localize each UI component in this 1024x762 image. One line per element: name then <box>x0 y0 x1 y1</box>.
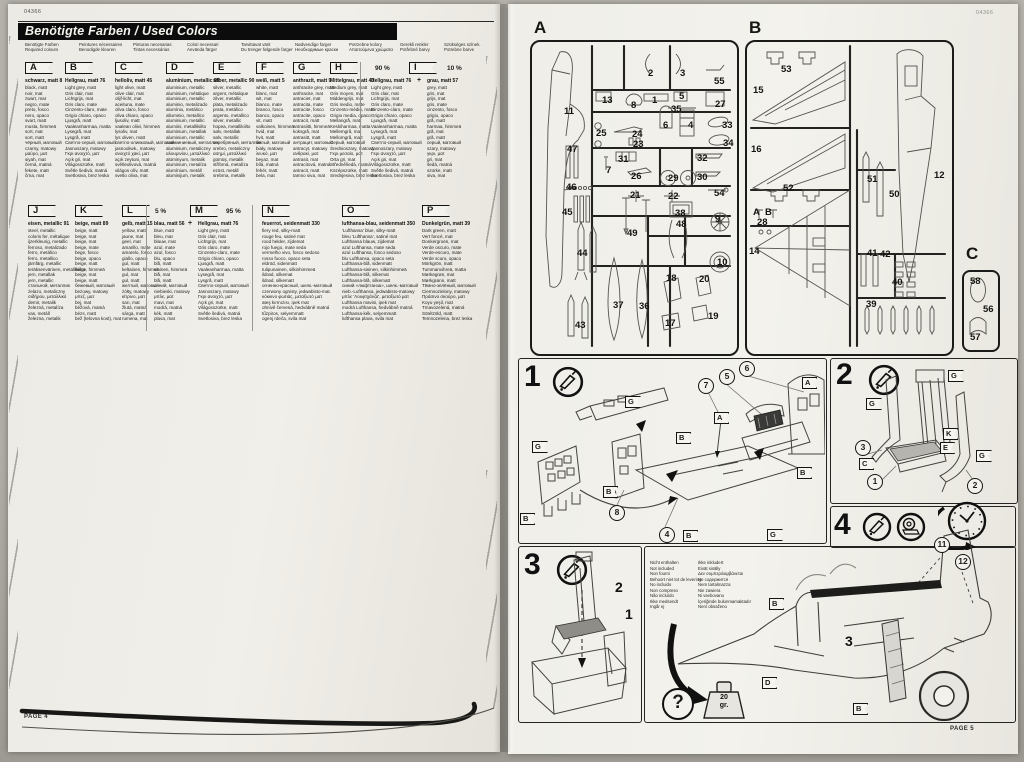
gutter-marks-bottom <box>486 470 497 708</box>
lang-label: Gerekli renklerPotřebné barvy <box>400 42 430 53</box>
text-line: cinzento, fosco <box>427 107 461 113</box>
part-number: 36 <box>639 301 650 312</box>
page-number-left: PAGE 4 <box>24 714 48 720</box>
part-number: 3 <box>680 68 685 79</box>
kit-number-right: 04366 <box>976 10 993 16</box>
part-number: 40 <box>892 277 903 288</box>
part-number: 29 <box>668 173 679 184</box>
paint-flag: A <box>714 412 729 424</box>
text-line: bež (telovna kost), mat <box>75 316 121 322</box>
part-number: 20 <box>699 274 710 285</box>
color-name-m-main: Hellgrau, matt 76 <box>198 221 238 227</box>
part-number: 34 <box>723 138 734 149</box>
part-number: 7 <box>606 165 611 176</box>
part-number: 38 <box>675 208 686 219</box>
text-line: antracitová, matná <box>293 162 334 168</box>
color-translations-m-main: Light grey, mattGris clair, matLichtgrij… <box>198 228 249 322</box>
text-line: bela, mat <box>256 173 294 179</box>
part-number: 2 <box>615 579 623 595</box>
color-translations-p: Dark green, mattVert foncé, matDonkergro… <box>422 228 476 322</box>
lang-label: Szükséges színek.Potrebne barve <box>444 42 481 53</box>
text-line: Není obsaženo <box>698 604 751 610</box>
sprue-c-part-numbers: 585657 <box>962 270 996 348</box>
part-number: 44 <box>577 248 588 259</box>
text-line: чёрный, матовый <box>25 140 62 146</box>
text-line: Svetlosiva, brez leska <box>198 316 249 322</box>
question-mark-icon: ? <box>662 688 694 720</box>
lang-label: Tarvittavat väritDu trenger følgende far… <box>241 42 293 53</box>
part-number: 35 <box>671 104 682 115</box>
color-name-a: schwarz, matt 8 <box>25 78 62 84</box>
paint-flag: A <box>802 377 817 389</box>
column-divider <box>360 62 361 180</box>
paint-flag: B <box>603 486 618 498</box>
part-number: 3 <box>845 633 853 649</box>
sprue-c-label: C <box>966 244 978 264</box>
page-curl-rule <box>16 694 498 752</box>
part-number: 17 <box>665 318 676 329</box>
color-translations-b: Light grey, mattGris clair, matLichtgrij… <box>65 85 116 179</box>
color-name-l: gelb, matt 15 <box>122 221 153 227</box>
sprue-b-label: B <box>749 18 761 38</box>
text-line: srebrna, metalik <box>213 173 261 179</box>
page-number-right: PAGE 5 <box>950 726 974 732</box>
sprue-a-part-numbers: 1123551381527352524643334234731327262930… <box>530 40 735 352</box>
text-line: Светло-серый, матовый <box>65 140 116 146</box>
part-number: 26 <box>631 171 642 182</box>
mix-plus-m: + <box>188 220 192 227</box>
color-name-d: aluminium, metallic 99 <box>166 78 219 84</box>
text-line: Тёмно-зелёный, матовый <box>422 283 476 289</box>
part-number: 37 <box>613 300 624 311</box>
text-line: κόκκινο φωτιάς, μεταξωτό ματ <box>262 294 332 300</box>
nose-weight-label: 20gr. <box>708 694 740 709</box>
color-name-n: feuerrot, seidenmatt 330 <box>262 221 320 227</box>
part-number: 53 <box>781 64 792 75</box>
paint-flag: G <box>948 370 964 382</box>
part-number: 6 <box>663 120 668 131</box>
lang-label: Peintures nécessairesBenodigde kleuren <box>79 42 122 53</box>
part-number: 43 <box>575 320 586 331</box>
color-name-j: eisen, metallic 91 <box>28 221 69 227</box>
paint-flag: C <box>859 458 874 470</box>
color-translations-n: fiery red, silky-mattrouge feu, satiné m… <box>262 228 332 322</box>
paint-flag: G <box>532 441 548 453</box>
part-number: 16 <box>751 144 762 155</box>
not-included-text-col2: Ikke inkludertEivät sisällyΔεν συμπεριλα… <box>698 560 751 610</box>
color-name-m-mix: blau, matt 56 <box>154 221 185 227</box>
text-line: Светло-серый, матовый <box>198 283 249 289</box>
color-translations-g: anthracite grey, mattanthracite, matantr… <box>293 85 334 179</box>
text-line: синий «люфтганза», шелк.-матовый <box>342 283 418 289</box>
color-translations-i-main: Light grey, mattGris clair, matLichtgrij… <box>371 85 422 179</box>
part-number: 5 <box>679 91 684 102</box>
mix-pct-mix-i: 10 % <box>447 65 462 72</box>
part-number: 55 <box>714 76 725 87</box>
text-line: Ingår ej <box>650 604 701 610</box>
text-line: Temnozelena, brez leska <box>422 316 476 322</box>
text-line: Светло-серый, матовый <box>371 140 422 146</box>
scanned-instruction-sheet: 04366 Benötigte Farben / Used Colors Ben… <box>0 0 1024 762</box>
lang-label: Benötigte FarbenRequired colours <box>25 42 59 53</box>
lang-label: Colori necessariAnvända färger <box>187 42 218 53</box>
part-number: 19 <box>708 311 719 322</box>
part-number: 47 <box>567 144 578 155</box>
part-number: 18 <box>666 273 677 284</box>
color-translations-f: white, mattblanc, matwit, matblanco, mat… <box>256 85 294 179</box>
color-name-b: Hellgrau, matt 76 <box>65 78 105 84</box>
column-divider <box>252 205 253 331</box>
part-number: 1 <box>625 606 633 622</box>
part-number: 13 <box>602 95 613 106</box>
part-number: 22 <box>668 191 679 202</box>
part-number: 11 <box>564 106 574 117</box>
part-number: 50 <box>889 189 900 200</box>
mix-pct-main-i: 90 % <box>375 65 390 72</box>
paint-flag: G <box>866 398 882 410</box>
used-colors-banner: Benötigte Farben / Used Colors <box>18 23 397 40</box>
part-number: 8 <box>631 100 636 111</box>
lang-label: Pinturas necesariasTintas necessárias <box>133 42 172 53</box>
part-number: 41 <box>867 248 878 259</box>
color-name-i-mix: grau, matt 57 <box>427 78 458 84</box>
part-number: 56 <box>983 304 994 315</box>
text-line: lufthansa plava, svila mat <box>342 316 418 322</box>
mix-plus-i: + <box>417 77 421 84</box>
paint-flag: G <box>976 450 992 462</box>
text-line: антрацит, матовый <box>293 140 334 146</box>
part-number: 57 <box>970 332 981 343</box>
step-3-part-numbers: 21 <box>518 546 640 721</box>
color-translations-e: silver, metallicargent, métaliquezilver,… <box>213 85 261 179</box>
part-number: 49 <box>627 228 638 239</box>
sprue-a-label: A <box>534 18 546 38</box>
color-translations-o: 'Lufthansa' blue, silky-mattbleu 'Luftha… <box>342 228 418 322</box>
part-number: 25 <box>596 128 607 139</box>
part-number: 23 <box>633 139 644 150</box>
color-translations-a: black, mattnoir, matzwart, matnegro, mat… <box>25 85 62 179</box>
color-name-o: lufthansa-blau, seidenmatt 350 <box>342 221 415 227</box>
part-number: 28 <box>757 217 768 228</box>
paint-flag: E <box>940 442 955 454</box>
lang-label: Potrzebne koloryΑπαιτούμενα χρώματα <box>349 42 393 53</box>
mix-pct-main-m: 95 % <box>226 208 241 215</box>
part-number: 12 <box>934 170 945 181</box>
part-number: 4 <box>688 120 693 131</box>
part-number: 10 <box>717 257 728 268</box>
part-number: 33 <box>722 120 733 131</box>
paint-flag: K <box>943 428 958 440</box>
lang-label: Nødvendige fargerНеобходимые краски <box>295 42 338 53</box>
color-name-h: Mittelgrau, matt 43 <box>330 78 374 84</box>
part-number: 21 <box>630 190 641 201</box>
text-line: Cinzento-médio, mate <box>330 107 377 113</box>
text-line: anthracite grey, matt <box>293 85 334 91</box>
kit-number-left: 04366 <box>24 9 41 15</box>
text-line: ogenj rdeča, svila mat <box>262 316 332 322</box>
color-name-f: weiß, matt 5 <box>256 78 285 84</box>
part-number: 14 <box>749 246 760 257</box>
part-number: 9 <box>715 214 720 225</box>
part-number: 27 <box>715 99 726 110</box>
part-number: 32 <box>697 153 708 164</box>
left-edge-binding-marks <box>9 36 18 708</box>
text-line: алюминиевый, металлик <box>166 140 218 146</box>
not-included-text-col1: Nicht enthaltenNot includedNon fourniBeh… <box>650 560 701 610</box>
text-line: Svetlosiva, brez leska <box>371 173 422 179</box>
text-line: белый, матовый <box>256 140 294 146</box>
text-line: огненно-красный, шелк.-матовый <box>262 283 332 289</box>
binding-gutter-shadow <box>494 4 516 752</box>
color-name-g: anthrazit, matt 9 <box>293 78 331 84</box>
part-number: 15 <box>753 85 764 96</box>
paint-flag: B <box>520 513 535 525</box>
text-line: Středněšedá, matná <box>330 162 377 168</box>
text-line: aluminijum, metalik <box>166 173 218 179</box>
color-translations-d: aluminium, metallicaluminium, métaliquea… <box>166 85 218 179</box>
paint-flag: B <box>676 432 691 444</box>
part-number: 48 <box>676 219 687 230</box>
text-line: серый, матовый <box>427 140 461 146</box>
part-number: 39 <box>866 299 877 310</box>
part-number: 51 <box>867 174 878 185</box>
text-line: μπλε 'Λουφτχάνζα', μεταξωτό ματ <box>342 294 418 300</box>
header-rule <box>18 21 494 22</box>
color-translations-h: Medium grey, mattGris moyen, matMiddengr… <box>330 85 377 179</box>
text-line: črna, mat <box>25 173 62 179</box>
part-number: 30 <box>697 172 708 183</box>
text-line: бежевый, матовый <box>75 283 121 289</box>
color-translations-i-mix: grey, mattgris, matgrijs, matgris, matec… <box>427 85 461 179</box>
color-name-k: beige, matt 89 <box>75 221 108 227</box>
color-name-c: helloliv, matt 45 <box>115 78 152 84</box>
mix-pct-mix-m: 5 % <box>155 208 166 215</box>
part-number: 46 <box>566 182 577 193</box>
text-line: Srednjesiva, brez leska <box>330 173 377 179</box>
part-number: 54 <box>714 188 725 199</box>
text-line: siva, mat <box>427 173 461 179</box>
color-name-i-main: Hellgrau, matt 76 <box>371 78 411 84</box>
part-number: 42 <box>880 249 891 260</box>
part-number: 45 <box>562 207 573 218</box>
color-translations-k: beige, mattbeige, matbeige, matbeige, ma… <box>75 228 121 322</box>
color-name-e: silber, metallic 90 <box>213 78 254 84</box>
step-4-part-numbers: 3 <box>644 506 1016 721</box>
text-line: modrá Lufthansa, hedvábně matná <box>342 305 418 311</box>
sprue-b-part-numbers: 53151651501252AB281441424039 <box>745 40 950 352</box>
text-line: plava, mat <box>154 316 190 322</box>
part-number: 2 <box>648 68 653 79</box>
part-number: 52 <box>783 183 794 194</box>
column-divider <box>146 205 147 331</box>
part-number: 31 <box>618 154 629 165</box>
text-line: tamno siva, mat <box>293 173 334 179</box>
gutter-marks-top <box>486 56 497 356</box>
paint-flag: G <box>625 396 641 408</box>
color-translations-m-mix: blue, mattbleu, matblauw, matazul, matea… <box>154 228 190 322</box>
text-line: ohnivě červená, hedvábně matná <box>262 305 332 311</box>
part-number: 1 <box>652 95 657 106</box>
step-2-paint-flags: GGKECG <box>830 358 1016 502</box>
text-line: серебряный, металлик <box>213 140 261 146</box>
part-number: 58 <box>970 276 981 287</box>
text-line: Svetlosiva, brez leska <box>65 173 116 179</box>
color-name-p: Dunkelgrün, matt 39 <box>422 221 470 227</box>
paint-flag: B <box>797 467 812 479</box>
text-line: синий, матовый <box>154 283 190 289</box>
